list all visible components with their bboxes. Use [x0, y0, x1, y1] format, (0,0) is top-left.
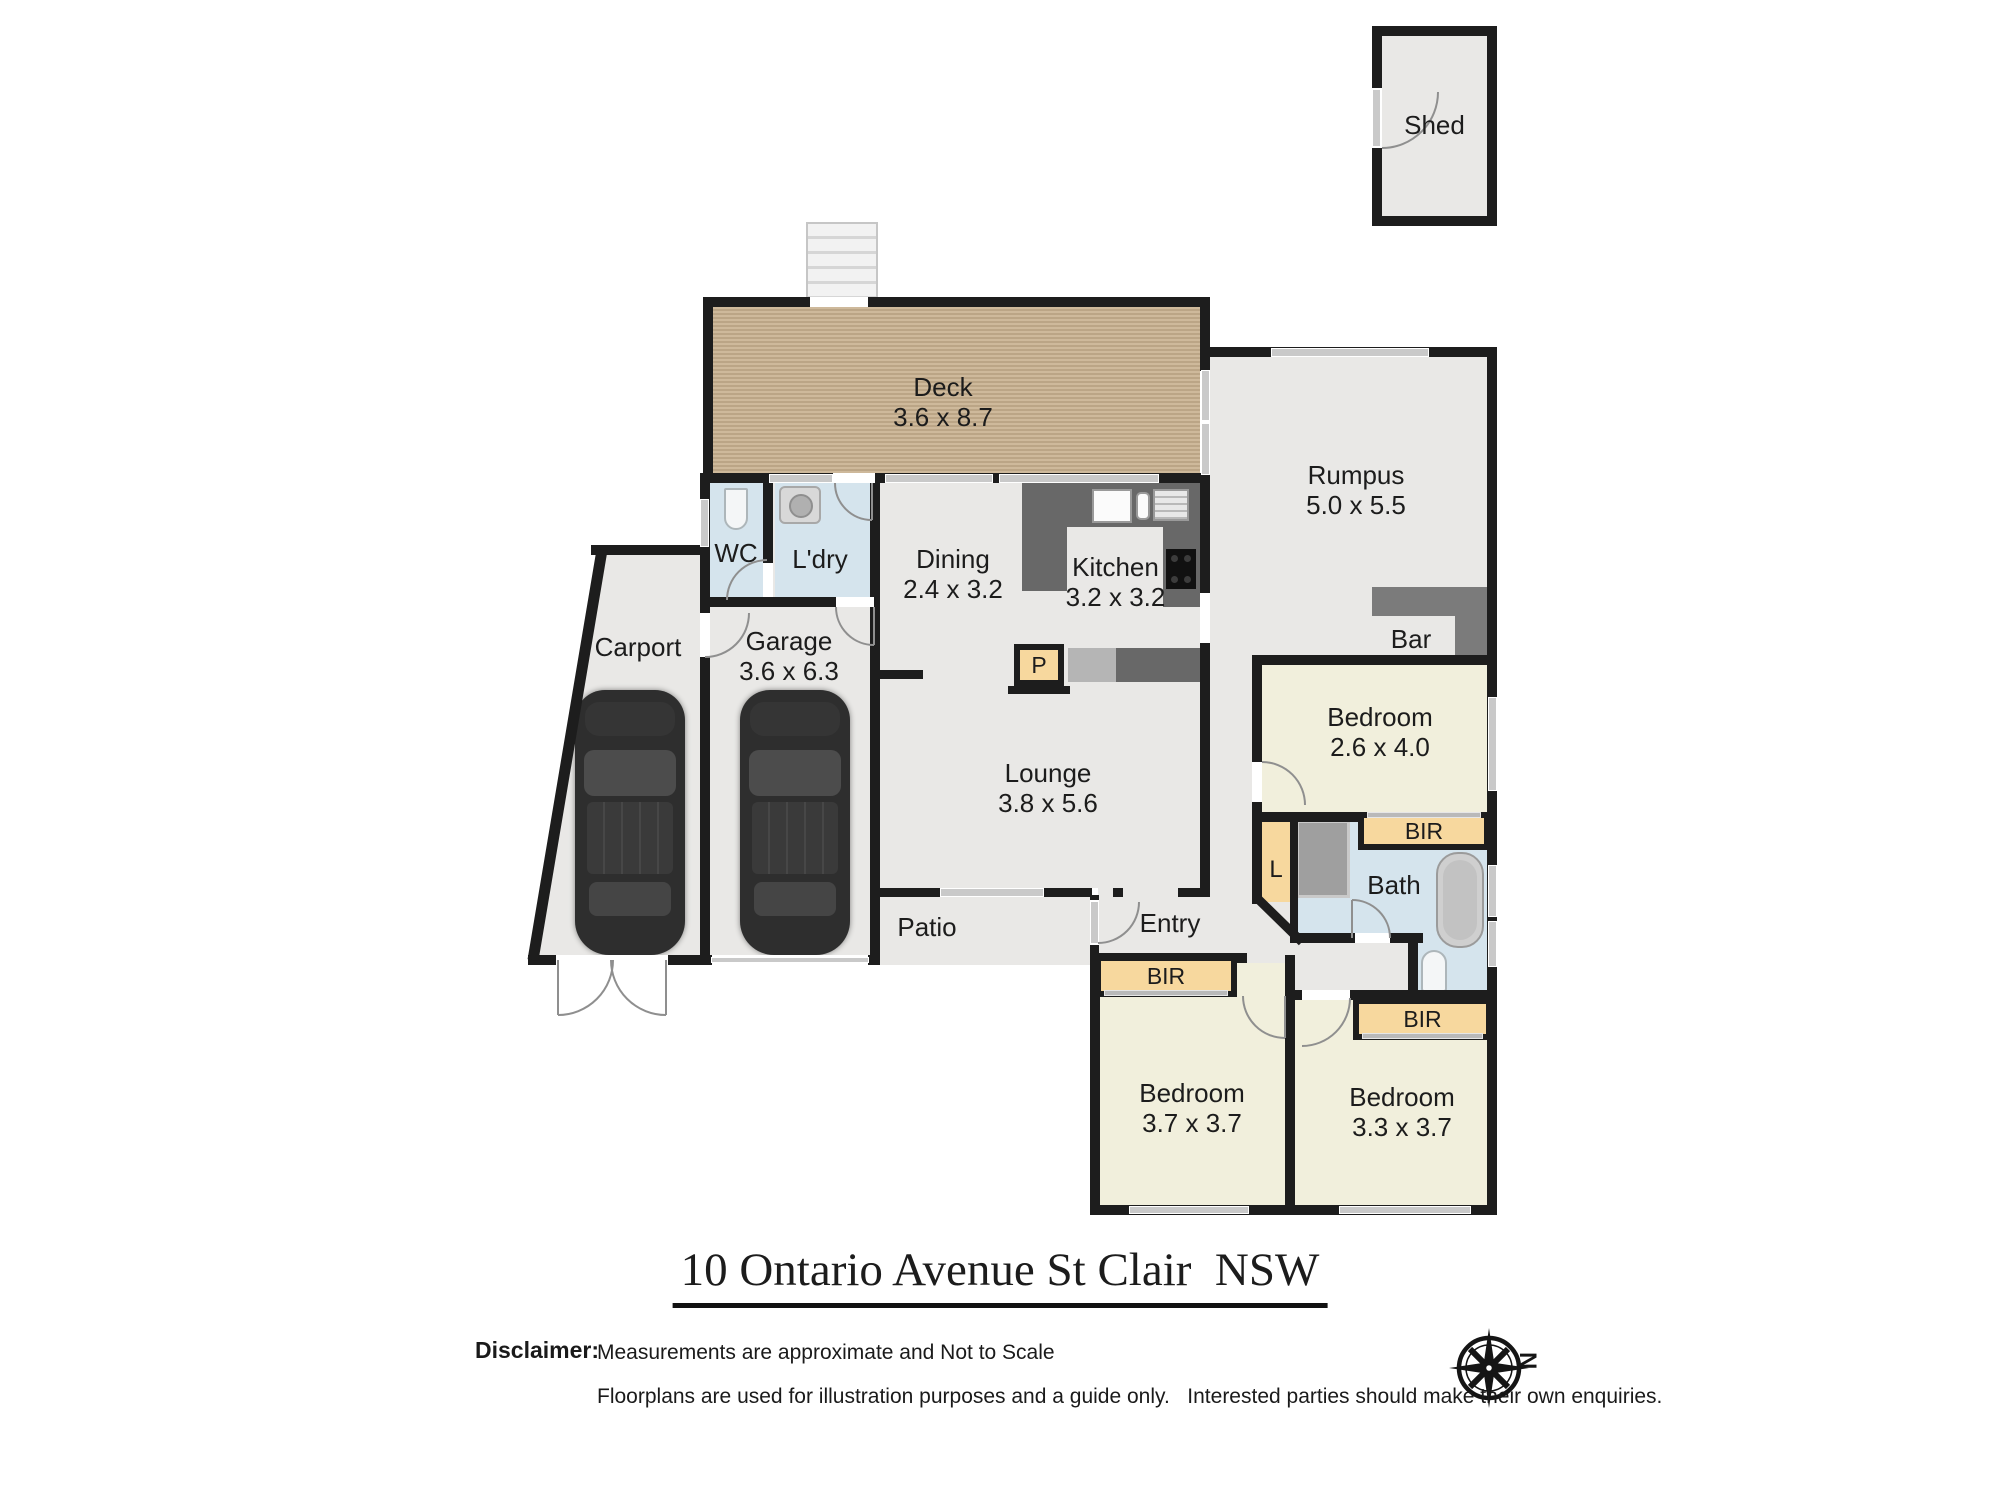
window	[1340, 1207, 1470, 1213]
room-label-deck: Deck3.6 x 8.7	[818, 372, 1068, 432]
bir-label: BIR	[1405, 818, 1443, 845]
pantry: P	[1014, 644, 1064, 686]
kitchen-tap	[1136, 492, 1150, 520]
room-label-lounge: Lounge3.8 x 5.6	[968, 758, 1128, 818]
window	[1489, 922, 1496, 966]
wall	[1372, 216, 1497, 226]
window	[1202, 371, 1209, 420]
window	[1000, 475, 1158, 482]
wall	[1178, 888, 1210, 897]
door-opening	[810, 297, 868, 307]
laundry-sink	[779, 486, 821, 524]
door-frame	[1091, 902, 1098, 943]
room-label-entry: Entry	[1115, 908, 1225, 938]
room-label-garage: Garage3.6 x 6.3	[708, 626, 870, 686]
door-arc	[611, 960, 666, 1015]
wall	[703, 297, 1210, 307]
window	[1272, 349, 1428, 356]
pantry-label: P	[1031, 652, 1046, 679]
door-opening	[556, 955, 668, 965]
room-label-shed: Shed	[1377, 110, 1492, 140]
kitchen-dish-rack	[1153, 489, 1189, 521]
corridor-floor	[1210, 655, 1252, 897]
door-arc	[558, 960, 613, 1015]
wall	[1390, 933, 1423, 943]
floorplan-canvas: BIR BIR BIR P	[0, 0, 2000, 1500]
disclaimer-heading: Disclaimer:	[475, 1337, 599, 1364]
wall	[875, 670, 923, 679]
room-label-patio: Patio	[877, 912, 977, 942]
car-garage	[740, 690, 850, 955]
window	[941, 889, 1043, 896]
room-label-kitchen: Kitchen3.2 x 3.2	[1038, 552, 1193, 612]
wall	[703, 297, 713, 483]
room-label-bar: Bar	[1370, 624, 1452, 654]
wall	[1008, 686, 1070, 694]
robe-slider	[1363, 1034, 1482, 1038]
car-carport	[575, 690, 685, 955]
room-label-bedroom1: Bedroom2.6 x 4.0	[1300, 702, 1460, 762]
robe-slider	[1105, 991, 1227, 995]
door-opening	[833, 473, 875, 483]
wall	[1252, 822, 1262, 904]
door-opening	[1355, 933, 1390, 943]
bir-label: BIR	[1147, 963, 1185, 990]
door-opening	[836, 597, 874, 607]
shower	[1296, 820, 1350, 898]
window	[1202, 424, 1209, 474]
disclaimer-line2: Floorplans are used for illustration pur…	[597, 1385, 1662, 1409]
wall	[1372, 26, 1382, 88]
wall	[1372, 26, 1497, 36]
wall	[1200, 297, 1210, 371]
wall	[1200, 691, 1210, 897]
window	[886, 475, 992, 482]
room-label-bath: Bath	[1344, 870, 1444, 900]
window	[1489, 866, 1496, 916]
built-in-robe-bedroom1: BIR	[1358, 812, 1490, 850]
wall	[1290, 822, 1298, 933]
garage-door	[712, 958, 868, 962]
robe-slider	[1368, 813, 1480, 817]
room-label-rumpus: Rumpus5.0 x 5.5	[1248, 460, 1464, 520]
page-title: 10 Ontario Avenue St Clair NSW	[673, 1243, 1328, 1308]
room-label-laundry: L'dry	[770, 544, 870, 574]
wall	[1200, 643, 1210, 691]
wc-toilet	[724, 488, 748, 530]
deck-stairs	[806, 222, 878, 302]
wall	[1290, 933, 1355, 943]
room-label-bedroom3: Bedroom3.3 x 3.7	[1310, 1082, 1494, 1142]
room-label-dining: Dining2.4 x 3.2	[878, 544, 1028, 604]
breakfast-bar-light	[1068, 648, 1116, 682]
wall	[1372, 148, 1382, 226]
bar-counter-v	[1455, 616, 1487, 660]
window	[1489, 698, 1496, 790]
wall	[1113, 888, 1123, 897]
wall	[1252, 655, 1497, 665]
disclaimer-line1: Measurements are approximate and Not to …	[597, 1341, 1055, 1365]
linen-label: L	[1262, 856, 1290, 884]
bar-counter-h	[1372, 587, 1487, 616]
compass-north-label: N	[1514, 1352, 1541, 1369]
door-opening	[1302, 990, 1350, 1000]
door-opening	[1252, 762, 1262, 802]
window	[1130, 1207, 1248, 1213]
wall	[1200, 473, 1210, 593]
wall	[1252, 812, 1368, 822]
room-label-carport: Carport	[576, 632, 700, 662]
kitchen-sink	[1092, 489, 1132, 523]
bir-label: BIR	[1403, 1006, 1441, 1033]
room-label-bedroom2: Bedroom3.7 x 3.7	[1098, 1078, 1286, 1138]
room-label-wc: WC	[706, 538, 766, 568]
wall	[1252, 655, 1262, 762]
bath-toilet	[1421, 950, 1447, 992]
breakfast-bar-dark	[1116, 648, 1202, 682]
window	[770, 475, 832, 482]
wall	[591, 545, 710, 555]
